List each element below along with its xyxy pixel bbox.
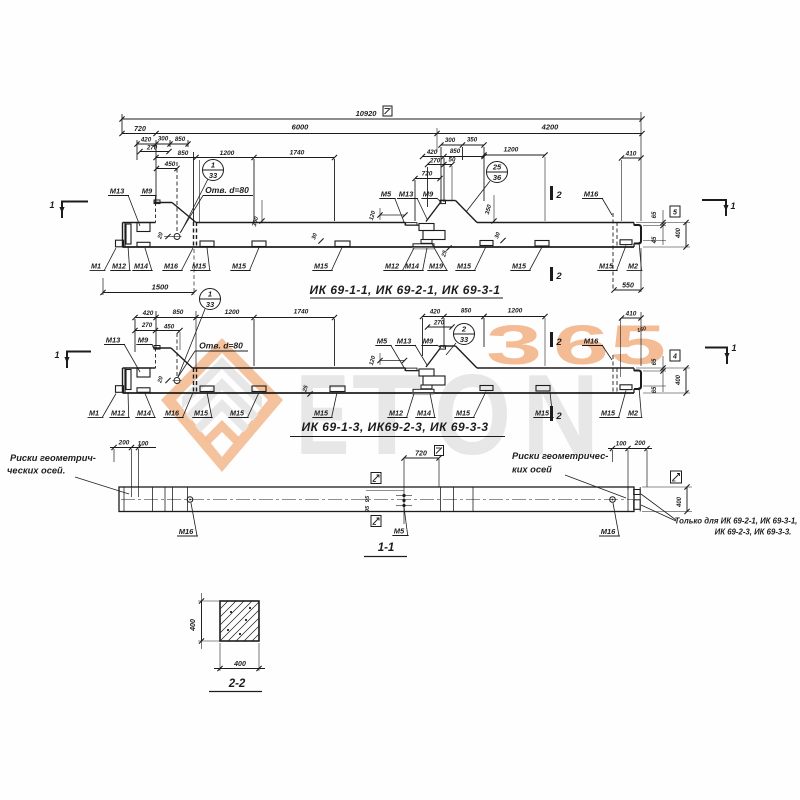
svg-text:М13: М13 (106, 336, 121, 345)
svg-text:М16: М16 (179, 527, 194, 536)
svg-text:М16: М16 (584, 337, 599, 346)
svg-text:1500: 1500 (152, 283, 170, 292)
svg-text:М15: М15 (314, 262, 329, 271)
svg-text:850: 850 (173, 309, 184, 316)
svg-text:М16: М16 (601, 527, 616, 536)
svg-text:10920: 10920 (356, 109, 378, 118)
svg-text:ких осей: ких осей (512, 465, 552, 475)
svg-text:33: 33 (206, 300, 215, 309)
svg-text:1740: 1740 (290, 150, 305, 157)
svg-text:420: 420 (140, 137, 152, 144)
svg-text:450: 450 (164, 161, 176, 168)
svg-text:ИК 69-1-1, ИК 69-2-1, ИК 69-3-: ИК 69-1-1, ИК 69-2-1, ИК 69-3-1 (310, 283, 501, 297)
svg-text:400: 400 (676, 374, 682, 386)
svg-text:850: 850 (461, 308, 472, 315)
svg-text:5: 5 (610, 314, 666, 376)
svg-text:850: 850 (178, 150, 189, 157)
svg-text:ИК 69-2-3, ИК 69-3-3.: ИК 69-2-3, ИК 69-3-3. (715, 528, 792, 537)
svg-text:45: 45 (652, 236, 658, 244)
svg-text:М12: М12 (112, 262, 126, 271)
svg-text:100: 100 (616, 441, 627, 448)
svg-text:2: 2 (555, 337, 562, 348)
svg-text:300: 300 (158, 136, 169, 143)
svg-text:М19: М19 (429, 262, 443, 271)
svg-text:270: 270 (433, 320, 445, 327)
svg-text:Отв. d=80: Отв. d=80 (199, 341, 243, 351)
svg-text:1200: 1200 (504, 147, 519, 154)
svg-text:200: 200 (634, 440, 646, 447)
svg-text:М9: М9 (142, 187, 153, 196)
svg-text:М14: М14 (137, 409, 151, 418)
svg-text:М15: М15 (601, 409, 616, 418)
svg-text:550: 550 (622, 283, 634, 290)
svg-text:2: 2 (555, 190, 562, 201)
svg-text:100: 100 (138, 441, 149, 448)
svg-text:Отв. d=80: Отв. d=80 (205, 185, 249, 195)
svg-text:400: 400 (190, 619, 197, 632)
svg-text:Только для ИК 69-2-1, ИК 69-3-: Только для ИК 69-2-1, ИК 69-3-1, (675, 517, 798, 526)
svg-text:М5: М5 (377, 337, 388, 346)
svg-text:ИК 69-1-3, ИК69-2-3, ИК 69-3-3: ИК 69-1-3, ИК69-2-3, ИК 69-3-3 (301, 420, 488, 434)
svg-text:1200: 1200 (508, 308, 523, 315)
svg-text:М12: М12 (389, 409, 403, 418)
svg-text:33: 33 (460, 335, 469, 344)
svg-text:М16: М16 (584, 190, 599, 199)
svg-text:400: 400 (233, 661, 246, 668)
svg-text:М15: М15 (230, 409, 245, 418)
svg-text:1200: 1200 (220, 150, 235, 157)
svg-text:1-1: 1-1 (378, 542, 395, 554)
svg-text:65: 65 (652, 386, 658, 393)
svg-text:ческих осей.: ческих осей. (7, 466, 65, 476)
svg-text:М15: М15 (599, 262, 614, 271)
svg-text:420: 420 (429, 309, 441, 316)
svg-text:350: 350 (467, 137, 478, 144)
svg-text:М15: М15 (232, 262, 247, 271)
svg-text:М13: М13 (110, 187, 125, 196)
svg-text:М16: М16 (164, 262, 179, 271)
svg-text:М15: М15 (194, 409, 209, 418)
svg-text:65: 65 (652, 358, 658, 365)
svg-text:720: 720 (415, 451, 427, 458)
svg-text:5: 5 (673, 210, 677, 217)
svg-text:1: 1 (208, 290, 212, 299)
svg-text:М13: М13 (399, 190, 414, 199)
svg-text:Риски геометрич-: Риски геометрич- (10, 453, 96, 463)
svg-text:33: 33 (209, 171, 218, 180)
svg-text:400: 400 (676, 227, 682, 239)
svg-text:6000: 6000 (292, 123, 310, 132)
svg-text:М15: М15 (314, 409, 329, 418)
svg-text:1: 1 (54, 350, 59, 360)
svg-text:36: 36 (493, 173, 502, 182)
svg-text:М9: М9 (138, 336, 149, 345)
svg-text:М5: М5 (394, 527, 405, 536)
svg-text:М14: М14 (134, 262, 148, 271)
svg-text:95: 95 (365, 495, 371, 502)
svg-text:2: 2 (461, 325, 467, 334)
svg-text:М13: М13 (397, 337, 412, 346)
svg-text:1: 1 (730, 201, 735, 211)
svg-text:М5: М5 (381, 190, 392, 199)
svg-text:М1: М1 (89, 409, 99, 418)
svg-text:1: 1 (211, 161, 215, 170)
svg-text:М1: М1 (91, 262, 101, 271)
svg-text:850: 850 (450, 148, 461, 155)
svg-text:М15: М15 (457, 262, 472, 271)
svg-text:1200: 1200 (225, 309, 240, 316)
svg-text:420: 420 (426, 149, 438, 156)
svg-text:3: 3 (486, 314, 542, 376)
svg-text:450: 450 (163, 324, 175, 331)
svg-text:50: 50 (449, 157, 456, 164)
svg-text:25: 25 (492, 163, 502, 172)
svg-text:М14: М14 (405, 262, 419, 271)
svg-text:М15: М15 (456, 409, 471, 418)
svg-text:410: 410 (625, 311, 637, 318)
svg-text:2-2: 2-2 (228, 678, 246, 690)
svg-text:М9: М9 (423, 337, 434, 346)
svg-text:М15: М15 (512, 262, 527, 271)
svg-text:200: 200 (118, 440, 130, 447)
svg-text:4200: 4200 (541, 123, 560, 132)
svg-text:410: 410 (625, 151, 637, 158)
svg-text:270: 270 (429, 158, 441, 165)
svg-text:4: 4 (672, 354, 677, 361)
svg-text:М2: М2 (628, 262, 638, 271)
svg-text:850: 850 (175, 136, 186, 143)
svg-text:1: 1 (731, 343, 736, 353)
svg-text:М9: М9 (423, 190, 434, 199)
svg-text:2: 2 (555, 271, 562, 282)
svg-text:Риски геометричес-: Риски геометричес- (512, 451, 608, 461)
svg-text:М16: М16 (165, 409, 180, 418)
svg-text:М14: М14 (417, 409, 431, 418)
svg-text:420: 420 (142, 310, 154, 317)
svg-text:М12: М12 (111, 409, 125, 418)
svg-text:400: 400 (677, 496, 683, 508)
svg-text:95: 95 (365, 505, 371, 512)
svg-text:2: 2 (555, 411, 562, 422)
svg-text:М15: М15 (535, 409, 550, 418)
svg-text:1: 1 (49, 200, 54, 210)
svg-text:М2: М2 (628, 409, 638, 418)
svg-text:720: 720 (134, 126, 146, 133)
svg-text:М12: М12 (385, 262, 399, 271)
svg-text:300: 300 (445, 137, 456, 144)
svg-text:270: 270 (141, 322, 153, 329)
svg-text:65: 65 (652, 211, 658, 218)
svg-text:1740: 1740 (294, 309, 309, 316)
